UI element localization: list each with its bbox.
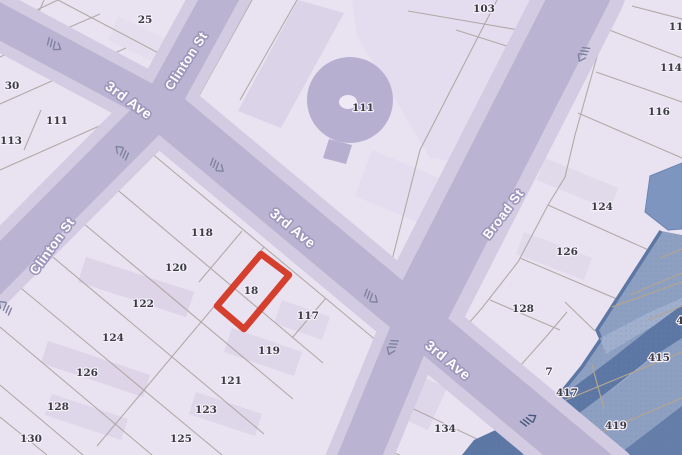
parcel-label-130: 130: [20, 433, 42, 445]
parcel-label-119: 119: [258, 345, 280, 357]
parcel-label-118: 118: [191, 227, 213, 239]
parcel-label-134: 134: [434, 423, 456, 435]
parcel-label-123: 123: [195, 404, 217, 416]
parcel-label-117: 117: [297, 310, 319, 322]
parcel-label-415: 415: [648, 352, 670, 364]
parcel-label-113: 113: [0, 135, 22, 147]
parcel-label-128: 128: [47, 401, 69, 413]
parcel-label-4: 4: [676, 315, 682, 327]
parcel-label-111: 111: [352, 102, 374, 114]
parcel-label-125: 125: [170, 433, 192, 445]
parcel-label-419: 419: [605, 420, 627, 432]
parcel-label-417: 417: [556, 387, 578, 399]
parcel-label-114: 114: [660, 62, 682, 74]
parcel-label-128: 128: [512, 303, 534, 315]
parcel-label-103: 103: [473, 3, 495, 15]
parcel-label-116: 116: [648, 106, 670, 118]
parcel-label-122: 122: [132, 298, 154, 310]
parcel-label-124: 124: [102, 332, 124, 344]
map-canvas[interactable]: 2510311130111113111141161241261287417415…: [0, 0, 682, 455]
parcel-label-11: 11: [669, 21, 682, 33]
parcel-label-121: 121: [220, 375, 242, 387]
parcel-label-111: 111: [46, 115, 68, 127]
map-image: 2510311130111113111141161241261287417415…: [0, 0, 682, 455]
parcel-label-7: 7: [545, 366, 552, 378]
parcel-label-30: 30: [5, 80, 20, 92]
parcel-label-18: 18: [244, 285, 259, 297]
parcel-label-25: 25: [138, 14, 153, 26]
parcel-label-120: 120: [165, 262, 187, 274]
parcel-label-126: 126: [76, 367, 98, 379]
parcel-label-126: 126: [556, 246, 578, 258]
parcel-label-124: 124: [591, 201, 613, 213]
